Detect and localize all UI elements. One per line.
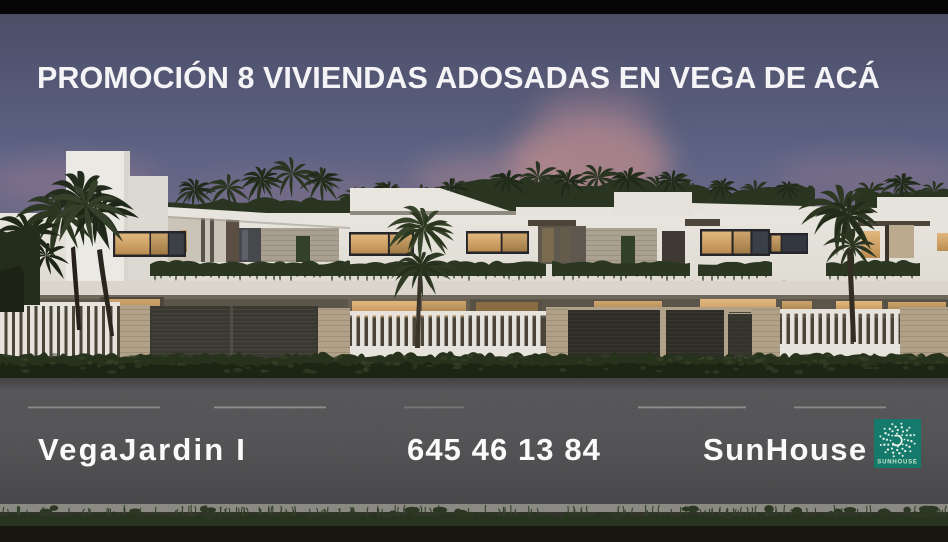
svg-text:645 46 13 84: 645 46 13 84: [407, 432, 601, 467]
svg-text:PROMOCIÓN 8 VIVIENDAS ADOSADAS: PROMOCIÓN 8 VIVIENDAS ADOSADAS EN VEGA D…: [37, 59, 880, 95]
svg-text:SUNHOUSE: SUNHOUSE: [877, 460, 917, 466]
svg-text:SunHouse: SunHouse: [703, 432, 868, 467]
svg-text:VegaJardin I: VegaJardin I: [38, 432, 247, 467]
